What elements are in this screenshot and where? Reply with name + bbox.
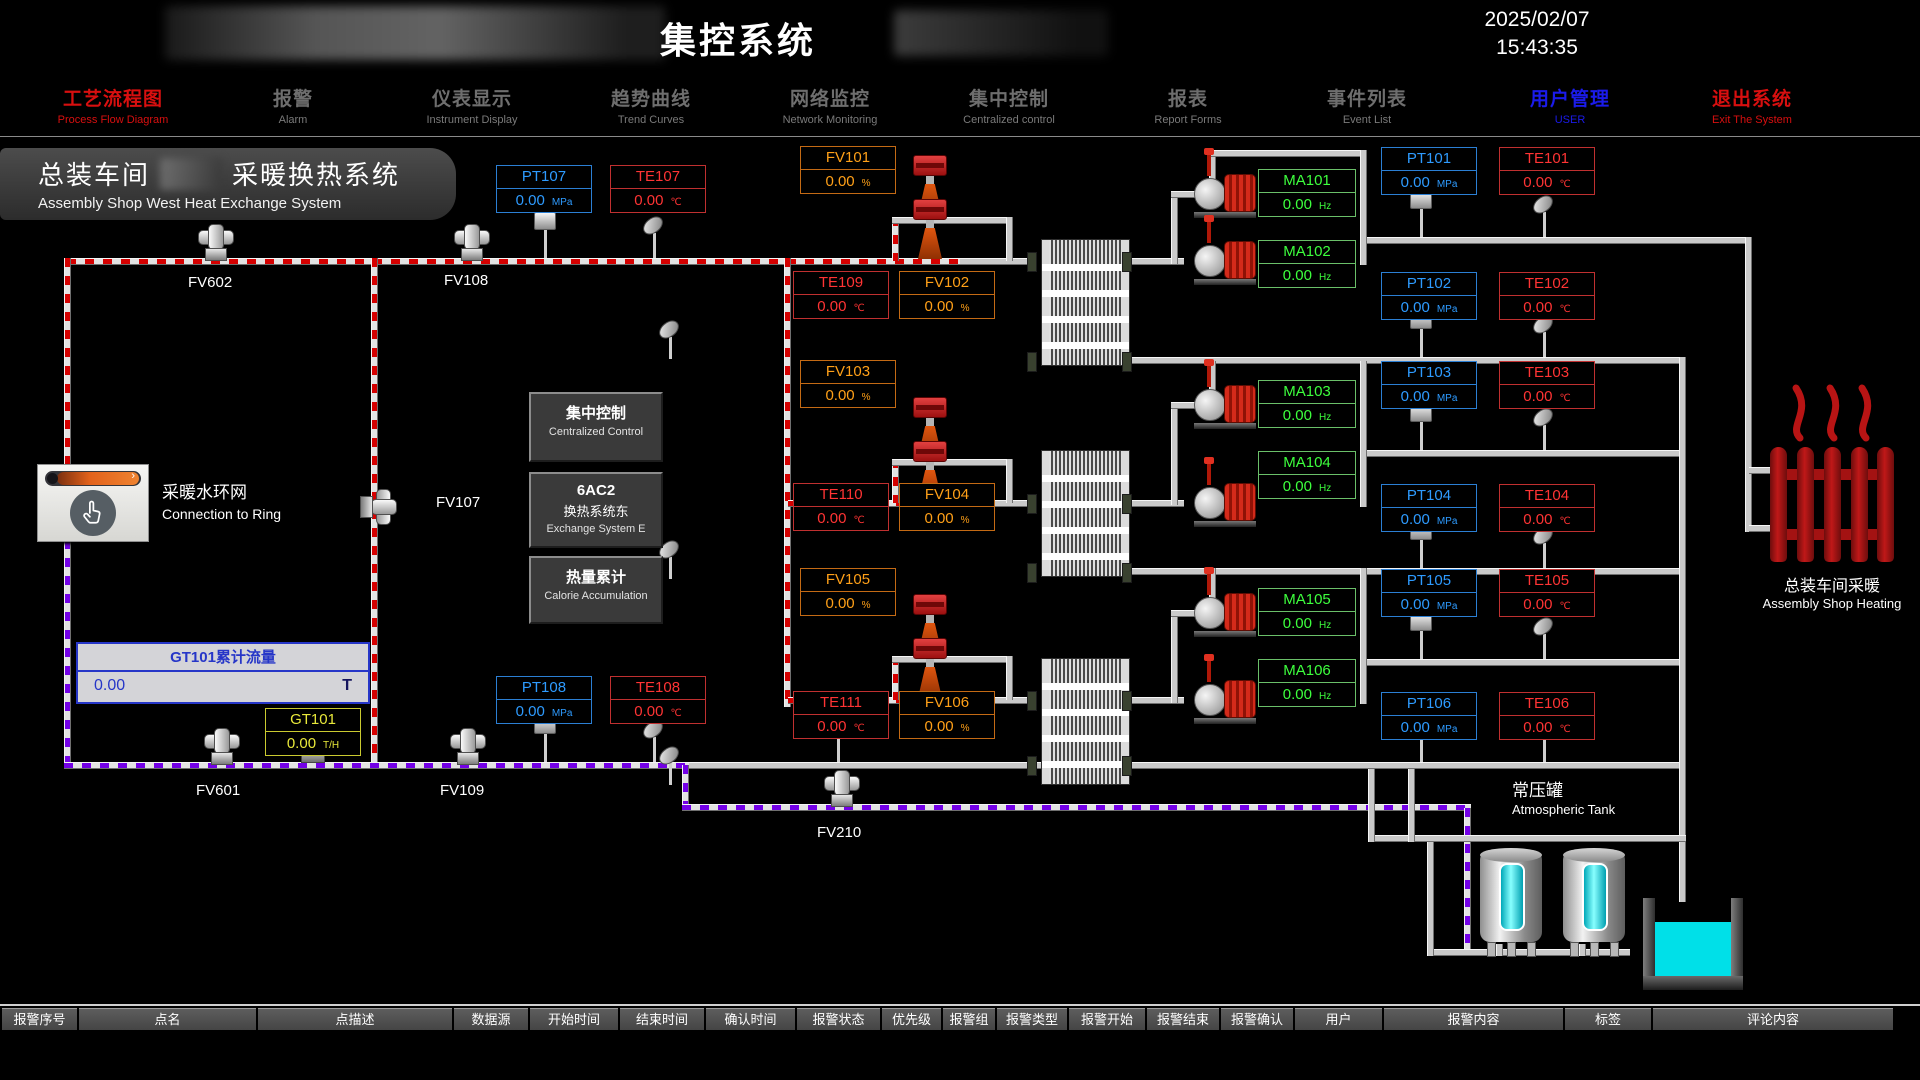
temperature-sensor <box>1532 197 1558 237</box>
alarm-col-3: 数据源 <box>454 1008 528 1030</box>
hx-port <box>1027 563 1037 583</box>
meter-TE105: TE1050.00℃ <box>1499 569 1595 617</box>
nav-zh: 趋势曲线 <box>556 84 746 111</box>
pipe-segment <box>892 656 1013 663</box>
tank-label-en: Atmospheric Tank <box>1512 802 1652 817</box>
nav-exit-system[interactable]: 退出系统 Exit The System <box>1657 84 1847 126</box>
alarm-col-5: 结束时间 <box>620 1008 704 1030</box>
hx-port <box>1027 252 1037 272</box>
pump-inlet-valve <box>1204 654 1214 682</box>
meter-MA104: MA1040.00Hz <box>1258 451 1356 499</box>
nav-en: USER <box>1475 114 1665 126</box>
heat-exchanger-2 <box>1042 451 1129 576</box>
meter-FV103: FV1030.00% <box>800 360 896 408</box>
nav-network-monitoring[interactable]: 网络监控 Network Monitoring <box>735 84 925 126</box>
divider <box>0 1004 1920 1006</box>
meter-FV105: FV1050.00% <box>800 568 896 616</box>
nav-zh: 报警 <box>198 84 388 111</box>
valve-FV210[interactable] <box>822 770 860 806</box>
hx-port <box>1122 691 1132 711</box>
water-basin <box>1643 898 1743 990</box>
pipe-segment <box>1171 405 1178 505</box>
meter-TE103: TE1030.00℃ <box>1499 361 1595 409</box>
meter-PT106: PT1060.00MPa <box>1381 692 1477 740</box>
alarm-col-14: 用户 <box>1295 1008 1382 1030</box>
company-logo-blur <box>165 6 665 60</box>
title-en: Assembly Shop West Heat Exchange System <box>38 195 456 212</box>
pressure-sensor <box>1410 613 1432 659</box>
pipe-segment <box>1745 237 1752 532</box>
title-zh-right: 采暖换热系统 <box>232 155 400 192</box>
pipe-return <box>64 540 71 769</box>
accumulator-value: 0.00 <box>94 672 125 699</box>
nav-user-management[interactable]: 用户管理 USER <box>1475 84 1665 126</box>
pump-MA106[interactable] <box>1194 676 1258 724</box>
ring-label-en: Connection to Ring <box>162 506 281 522</box>
valve-label-FV108: FV108 <box>444 272 488 289</box>
pipe-segment <box>1408 769 1415 842</box>
button-en: Centralized Control <box>531 426 661 438</box>
hx-port <box>1122 352 1132 372</box>
meter-PT101: PT1010.00MPa <box>1381 147 1477 195</box>
title-zh-left: 总装车间 <box>38 155 150 192</box>
header-blur-2 <box>894 10 1108 56</box>
hx-port <box>1122 494 1132 514</box>
nav-en: Centralized control <box>914 114 1104 126</box>
button-centralized-control[interactable]: 集中控制 Centralized Control <box>529 392 663 462</box>
nav-zh: 网络监控 <box>735 84 925 111</box>
pump-inlet-valve <box>1204 567 1214 595</box>
radiator-label-zh: 总装车间采暖 <box>1762 572 1902 596</box>
meter-PT108: PT1080.00MPa <box>496 676 592 724</box>
pipe-segment <box>1360 568 1367 704</box>
nav-en: Instrument Display <box>377 114 567 126</box>
pipe-segment <box>1364 659 1686 666</box>
valve-FV108[interactable] <box>452 224 490 260</box>
button-zh: 集中控制 <box>531 402 661 423</box>
meter-FV106: FV1060.00% <box>899 691 995 739</box>
pump-MA103[interactable] <box>1194 381 1258 429</box>
pipe-segment <box>892 217 1013 224</box>
button-6ac2-exchange-system[interactable]: 6AC2 换热系统东 Exchange System E <box>529 472 663 548</box>
alarm-col-17: 评论内容 <box>1653 1008 1893 1030</box>
heat-exchanger-3 <box>1042 659 1129 784</box>
nav-trend-curves[interactable]: 趋势曲线 Trend Curves <box>556 84 746 126</box>
pump-inlet-valve <box>1204 215 1214 243</box>
title-blur <box>160 158 222 190</box>
pipe-segment <box>1006 217 1013 261</box>
pipe-segment <box>1496 944 1503 956</box>
pipe-segment <box>1006 459 1013 503</box>
alarm-col-9: 报警组 <box>943 1008 995 1030</box>
pipe-segment <box>1679 357 1686 902</box>
pump-MA101[interactable] <box>1194 170 1258 218</box>
ring-label-zh: 采暖水环网 <box>162 478 247 503</box>
pipe-segment <box>689 762 1686 769</box>
nav-en: Report Forms <box>1093 114 1283 126</box>
valve-FV109[interactable] <box>448 728 486 764</box>
alarm-col-8: 优先级 <box>882 1008 941 1030</box>
nav-report-forms[interactable]: 报表 Report Forms <box>1093 84 1283 126</box>
system-title: 集控系统 <box>660 12 816 64</box>
pressure-sensor <box>1410 404 1432 450</box>
pipe-segment <box>1427 842 1434 956</box>
nav-process-flow-diagram[interactable]: 工艺流程图 Process Flow Diagram <box>18 84 208 126</box>
hx-port <box>1122 756 1132 776</box>
alarm-col-1: 点名 <box>79 1008 256 1030</box>
meter-TE101: TE1010.00℃ <box>1499 147 1595 195</box>
pipe-segment <box>1368 835 1686 842</box>
button-code: 6AC2 <box>531 482 661 499</box>
alarm-col-4: 开始时间 <box>530 1008 618 1030</box>
pipe-segment <box>1171 194 1178 264</box>
meter-FV104: FV1040.00% <box>899 483 995 531</box>
hx-port <box>1122 563 1132 583</box>
pump-inlet-valve <box>1204 148 1214 176</box>
temperature-sensor <box>642 218 668 258</box>
divider <box>0 136 1920 137</box>
pump-MA104[interactable] <box>1194 479 1258 527</box>
nav-centralized-control[interactable]: 集中控制 Centralized control <box>914 84 1104 126</box>
alarm-col-15: 报警内容 <box>1384 1008 1563 1030</box>
expansion-tank-2 <box>1563 850 1625 942</box>
hx-port <box>1027 691 1037 711</box>
pipe-segment <box>1360 150 1367 265</box>
hand-touch-icon <box>70 490 116 536</box>
pipe-segment <box>1209 150 1364 157</box>
nav-en: Exit The System <box>1657 114 1847 126</box>
slider-icon: › <box>45 471 141 486</box>
alarm-col-6: 确认时间 <box>706 1008 795 1030</box>
alarm-col-16: 标签 <box>1565 1008 1651 1030</box>
meter-FV101: FV1010.00% <box>800 146 896 194</box>
pressure-sensor <box>1410 191 1432 237</box>
nav-alarm[interactable]: 报警 Alarm <box>198 84 388 126</box>
pipe-segment <box>960 258 1035 265</box>
alarm-col-12: 报警结束 <box>1147 1008 1219 1030</box>
pipe-segment <box>1360 361 1367 507</box>
pump-MA105[interactable] <box>1194 589 1258 637</box>
meter-TE106: TE1060.00℃ <box>1499 692 1595 740</box>
alarm-col-2: 点描述 <box>258 1008 452 1030</box>
control-valve-FV102[interactable] <box>913 199 947 261</box>
ring-network-button[interactable]: › <box>37 464 149 542</box>
meter-TE111: TE1110.00℃ <box>793 691 889 739</box>
button-en: Exchange System E <box>531 523 661 535</box>
pipe-segment <box>892 459 1013 466</box>
meter-MA101: MA1010.00Hz <box>1258 169 1356 217</box>
nav-zh: 报表 <box>1093 84 1283 111</box>
meter-TE102: TE1020.00℃ <box>1499 272 1595 320</box>
nav-en: Event List <box>1272 114 1462 126</box>
accumulator-title: GT101累计流量 <box>78 644 368 672</box>
alarm-col-7: 报警状态 <box>797 1008 880 1030</box>
valve-label-FV601: FV601 <box>196 782 240 799</box>
valve-FV107[interactable] <box>361 487 397 525</box>
pipe-segment <box>1364 237 1749 244</box>
radiator-icon <box>1770 447 1894 562</box>
meter-TE109: TE1090.00℃ <box>793 271 889 319</box>
meter-PT107: PT1070.00MPa <box>496 165 592 213</box>
meter-MA106: MA1060.00Hz <box>1258 659 1356 707</box>
button-en: Calorie Accumulation <box>531 590 661 602</box>
nav-zh: 退出系统 <box>1657 84 1847 111</box>
nav-zh: 工艺流程图 <box>18 84 208 111</box>
temperature-sensor <box>658 322 684 359</box>
nav-en: Alarm <box>198 114 388 126</box>
nav-zh: 仪表显示 <box>377 84 567 111</box>
valve-label-FV109: FV109 <box>440 782 484 799</box>
meter-TE108: TE1080.00℃ <box>610 676 706 724</box>
heat-waves-icon <box>1786 382 1886 444</box>
hx-port <box>1027 494 1037 514</box>
valve-FV601[interactable] <box>202 728 240 764</box>
nav-event-list[interactable]: 事件列表 Event List <box>1272 84 1462 126</box>
valve-label-FV602: FV602 <box>188 274 232 291</box>
meter-FV102: FV1020.00% <box>899 271 995 319</box>
meter-PT104: PT1040.00MPa <box>1381 484 1477 532</box>
temperature-sensor <box>1532 410 1558 450</box>
nav-zh: 事件列表 <box>1272 84 1462 111</box>
pipe-segment <box>64 258 71 464</box>
pressure-sensor <box>534 212 556 258</box>
pipe-segment <box>1171 613 1178 703</box>
button-zh: 换热系统东 <box>531 501 661 520</box>
pipe-segment <box>1364 450 1686 457</box>
meter-MA105: MA1050.00Hz <box>1258 588 1356 636</box>
alarm-col-13: 报警确认 <box>1221 1008 1293 1030</box>
meter-GT101: GT1010.00T/H <box>265 708 361 756</box>
pipe-segment <box>1368 769 1375 842</box>
meter-PT102: PT1020.00MPa <box>1381 272 1477 320</box>
meter-PT103: PT1030.00MPa <box>1381 361 1477 409</box>
page-title: 总装车间采暖换热系统 Assembly Shop West Heat Excha… <box>0 148 456 220</box>
meter-TE104: TE1040.00℃ <box>1499 484 1595 532</box>
accumulated-flow-GT101: GT101累计流量 0.00T <box>76 642 370 704</box>
meter-MA102: MA1020.00Hz <box>1258 240 1356 288</box>
valve-label-FV210: FV210 <box>817 824 861 841</box>
heat-exchanger-1 <box>1042 240 1129 365</box>
meter-MA103: MA1030.00Hz <box>1258 380 1356 428</box>
pipe-return <box>64 762 689 769</box>
temperature-sensor <box>1532 317 1558 357</box>
pipe-segment <box>784 258 791 707</box>
hx-port <box>1027 352 1037 372</box>
button-zh: 热量累计 <box>531 566 661 587</box>
tank-label-zh: 常压罐 <box>1512 776 1612 801</box>
alarm-col-10: 报警类型 <box>997 1008 1067 1030</box>
hx-port <box>1027 756 1037 776</box>
header-time: 15:43:35 <box>1457 36 1617 60</box>
pump-inlet-valve <box>1204 457 1214 485</box>
alarm-col-11: 报警开始 <box>1069 1008 1145 1030</box>
nav-en: Process Flow Diagram <box>18 114 208 126</box>
pipe-return <box>682 804 1471 811</box>
hx-port <box>1122 252 1132 272</box>
nav-en: Network Monitoring <box>735 114 925 126</box>
pipe-segment <box>1006 656 1013 700</box>
nav-zh: 用户管理 <box>1475 84 1665 111</box>
pipe-return <box>1464 808 1471 952</box>
meter-TE107: TE1070.00℃ <box>610 165 706 213</box>
accumulator-unit: T <box>342 672 352 699</box>
temperature-sensor <box>1532 528 1558 568</box>
alarm-col-0: 报警序号 <box>2 1008 77 1030</box>
button-calorie-accumulation[interactable]: 热量累计 Calorie Accumulation <box>529 556 663 624</box>
pump-MA102[interactable] <box>1194 237 1258 285</box>
meter-PT105: PT1050.00MPa <box>1381 569 1477 617</box>
header-date: 2025/02/07 <box>1457 8 1617 32</box>
expansion-tank-1 <box>1480 850 1542 942</box>
pipe-segment <box>1579 944 1586 956</box>
nav-zh: 集中控制 <box>914 84 1104 111</box>
nav-en: Trend Curves <box>556 114 746 126</box>
nav-instrument-display[interactable]: 仪表显示 Instrument Display <box>377 84 567 126</box>
water-level <box>1654 922 1732 977</box>
radiator-label-en: Assembly Shop Heating <box>1752 596 1912 611</box>
alarm-table-header: 报警序号点名点描述数据源开始时间结束时间确认时间报警状态优先级报警组报警类型报警… <box>2 1008 1895 1030</box>
valve-label-FV107: FV107 <box>436 494 480 511</box>
temperature-sensor <box>658 748 684 785</box>
pump-inlet-valve <box>1204 359 1214 387</box>
temperature-sensor <box>1532 619 1558 659</box>
meter-TE110: TE1100.00℃ <box>793 483 889 531</box>
valve-FV602[interactable] <box>196 224 234 260</box>
